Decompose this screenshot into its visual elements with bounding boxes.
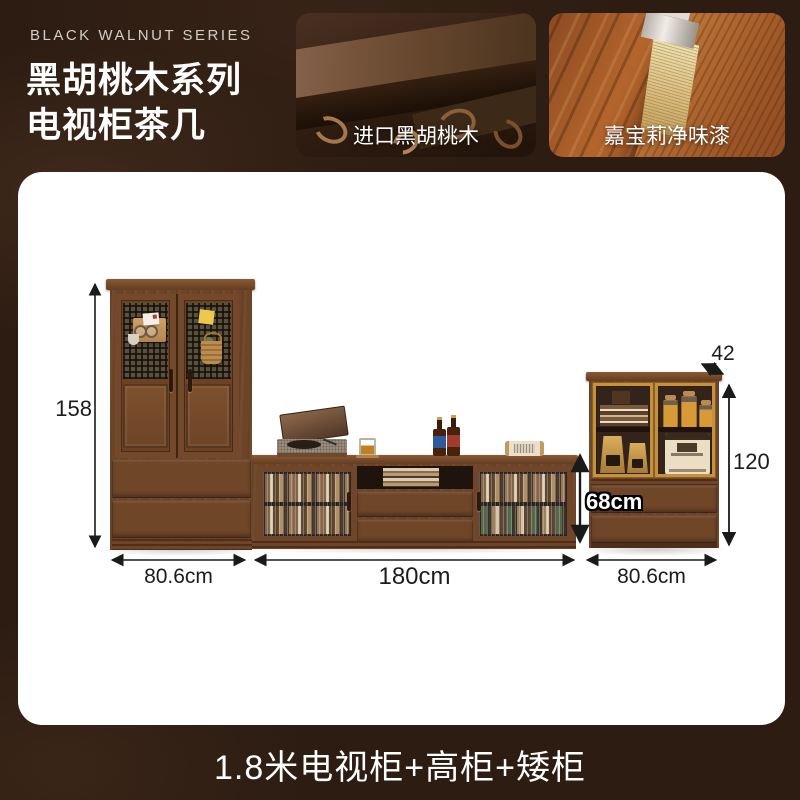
dim-label-low-depth: 42 — [705, 342, 741, 366]
dim-label-low-height: 120 — [733, 449, 770, 475]
dim-label-tv-width: 180cm — [254, 563, 575, 591]
dim-label-low-width: 80.6cm — [586, 565, 717, 589]
dim-label-tall-width: 80.6cm — [110, 565, 247, 589]
dim-label-tall-height: 158 — [50, 396, 92, 422]
product-detail-image: BLACK WALNUT SERIES 黑胡桃木系列 电视柜茶几 进口黑胡桃木 … — [0, 0, 800, 800]
dimension-arrows — [0, 0, 800, 800]
dim-label-tv-height: 68cm — [586, 489, 642, 515]
footer-product-title: 1.8米电视柜+高柜+矮柜 — [0, 740, 800, 789]
